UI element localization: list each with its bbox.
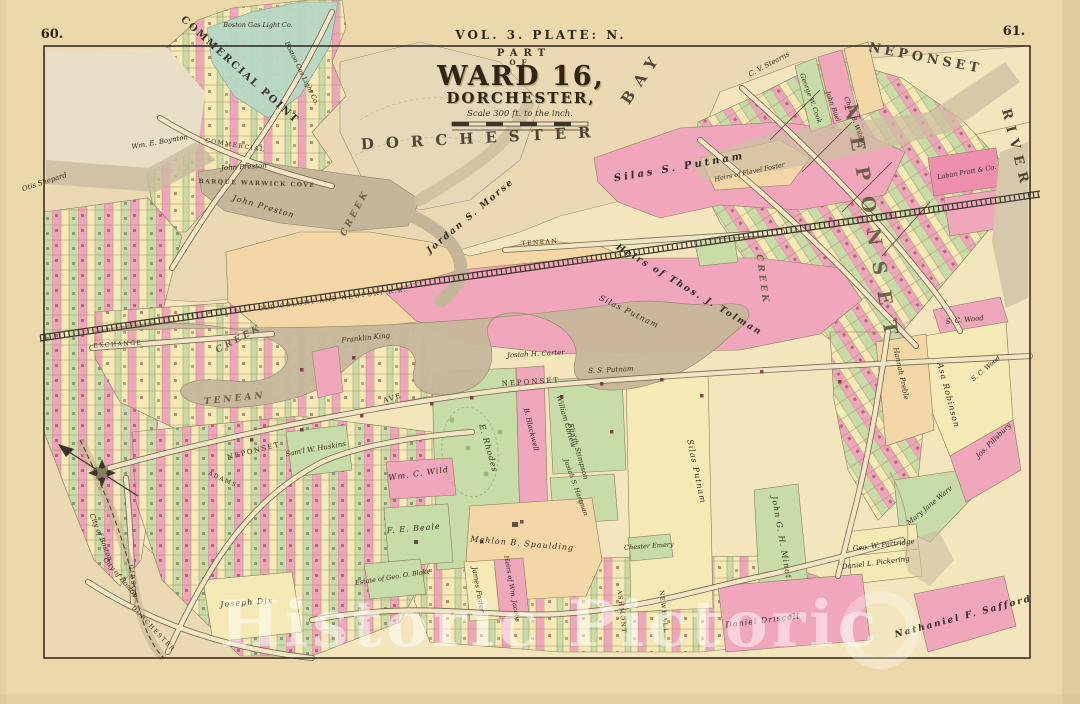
map-canvas: 60. 61. VOL. 3. PLATE: N. PART OF WARD 1…: [0, 0, 1080, 704]
page-number-left: 60.: [41, 27, 64, 42]
parcel-beale: [384, 504, 453, 567]
title-scale-note: Scale 300 ft. to the inch.: [467, 109, 573, 119]
title-city: DORCHESTER,: [446, 89, 595, 107]
atlas-map-page: 60. 61. VOL. 3. PLATE: N. PART OF WARD 1…: [0, 0, 1080, 704]
parcel-corlew: [548, 376, 626, 474]
owner-gas-1: Boston Gas Light Co.: [222, 21, 293, 29]
watermark: Historic Pictoric: [220, 587, 914, 663]
watermark-text: Historic Pictoric: [220, 587, 881, 662]
title-ward: WARD 16,: [436, 61, 605, 92]
plate-title: VOL. 3. PLATE: N.: [454, 28, 626, 42]
page-number-right: 61.: [1003, 24, 1026, 39]
